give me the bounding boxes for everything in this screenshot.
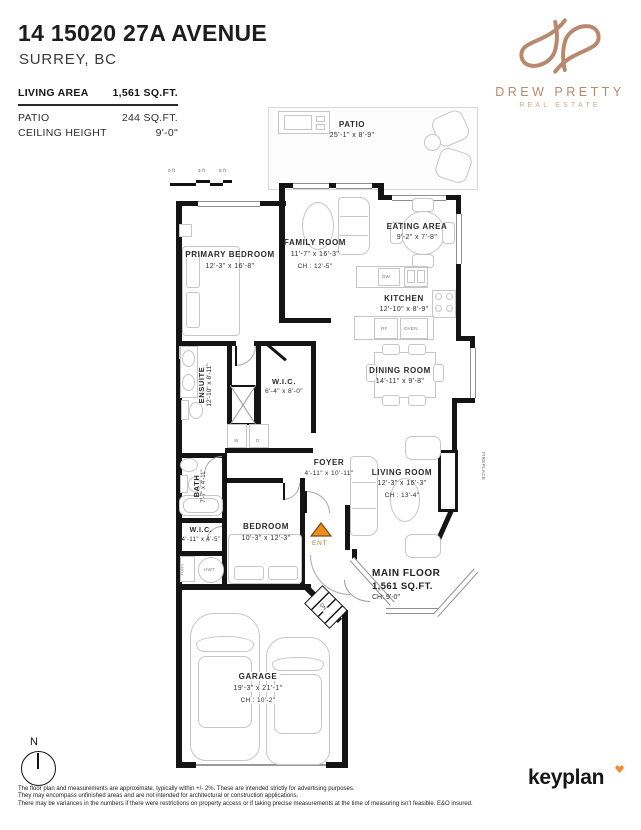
wall <box>176 584 311 590</box>
eating-table <box>401 211 445 255</box>
scale-bar-segment <box>223 180 232 183</box>
wic-primary-dims: 6'-4" x 8'-0" <box>265 388 303 395</box>
car-cabin <box>198 656 252 728</box>
sofa-cushion-line <box>340 216 368 217</box>
kitchen-dims: 12'-10" x 8'-9" <box>379 306 428 313</box>
floor-plan: 0 ft 3 ft 5 ft <box>0 0 641 830</box>
furnace-label: FURN <box>179 564 184 576</box>
garage-label: GARAGE <box>237 672 280 681</box>
chair <box>433 364 444 382</box>
wall <box>176 518 226 523</box>
chair <box>408 344 426 355</box>
north-arrow-icon <box>21 751 56 786</box>
entry-arrow-icon <box>310 522 332 537</box>
burner <box>435 305 442 312</box>
ensuite-label: ENSUITE <box>197 340 206 430</box>
scale-bar-segment <box>210 183 223 186</box>
wall <box>279 183 285 323</box>
chair <box>382 395 400 406</box>
main-floor-area: 1,561 SQ.FT. <box>372 581 440 592</box>
door-arc <box>236 346 256 366</box>
primary-bedroom-label: PRIMARY BEDROOM <box>185 250 274 259</box>
sofa-cushion-line <box>352 508 376 509</box>
chair <box>382 344 400 355</box>
wall <box>225 478 283 483</box>
main-floor-block: MAIN FLOOR 1,561 SQ.FT. CH: 9'-0" <box>372 568 440 601</box>
bay-window <box>434 568 479 617</box>
hwt-label: HWT <box>204 567 215 572</box>
patio-room-label: PATIO <box>339 120 365 129</box>
entry-label: ENT <box>312 540 327 547</box>
living-room-label: LIVING ROOM <box>372 468 432 477</box>
toilet-tank <box>181 400 189 420</box>
fireplace-label: FIREPLACE <box>478 452 486 502</box>
family-room-dims: 11'-7" x 16'-3" <box>291 251 340 258</box>
patio-room-dims: 25'-1" x 8'-9" <box>330 132 375 139</box>
dishwasher-label: DW <box>382 274 390 279</box>
ensuite-dims: 12'-10" x 8'-11" <box>206 340 213 430</box>
sink-basin <box>407 270 415 283</box>
oven-label: OVEN <box>404 326 418 331</box>
burner <box>446 305 453 312</box>
wall <box>254 341 316 346</box>
nightstand <box>179 224 192 237</box>
wic-primary-label: W.I.C. <box>272 377 296 386</box>
fireplace <box>438 450 458 512</box>
shower-x <box>230 385 256 425</box>
washer-label: W <box>234 438 239 443</box>
door-arc <box>283 483 300 500</box>
scale-five: 5 ft <box>219 168 226 173</box>
bay-window <box>386 608 440 614</box>
bbq-knob <box>316 116 325 122</box>
bath-label-block: BATH 7'-7" x 4'-11" <box>192 454 216 518</box>
disclaimer-line: There may be variances in the numbers if… <box>18 801 473 808</box>
window <box>293 183 329 189</box>
sink <box>182 350 195 367</box>
main-floor-label: MAIN FLOOR <box>372 568 440 579</box>
dryer-label: D <box>256 438 260 443</box>
dryer <box>249 424 269 448</box>
armchair <box>405 534 441 558</box>
door-leaf <box>283 483 285 500</box>
chair <box>412 198 434 212</box>
family-room-label: FAMILY ROOM <box>284 238 346 247</box>
chair <box>408 395 426 406</box>
door-leaf <box>235 346 237 366</box>
garage-entry-door-arc <box>310 555 350 595</box>
north-needle <box>37 753 39 769</box>
wic-hall-label: W.I.C. <box>190 527 213 534</box>
entry-door-arc <box>306 491 330 513</box>
scale-zero: 0 ft <box>168 168 175 173</box>
primary-bedroom-dims: 12'-3" x 16'-8" <box>205 263 254 270</box>
pillow <box>268 566 298 580</box>
bbq-grill-top <box>284 115 312 130</box>
ensuite-label-block: ENSUITE 12'-10" x 8'-11" <box>197 340 223 430</box>
sofa-cushion-line <box>352 482 376 483</box>
burner <box>446 293 453 300</box>
wic-hall-dims: 4'-11" x 4'-5" <box>182 537 221 543</box>
garage-ch: CH : 10'-2" <box>239 697 278 704</box>
sink <box>182 374 195 391</box>
floorplan-page: 14 15020 27A AVENUE SURREY, BC LIVING AR… <box>0 0 641 830</box>
dining-table <box>374 352 436 398</box>
bbq-knob <box>316 124 325 130</box>
window <box>456 214 462 264</box>
foyer-dims: 4'-11" x 10'-11" <box>304 470 353 477</box>
living-room-dims: 12'-3" x 16'-3" <box>377 480 426 487</box>
patio-table <box>424 134 441 151</box>
keyplan-fox-icon <box>614 764 625 774</box>
disclaimer: The floor plan and measurements are appr… <box>18 786 473 808</box>
foyer-label: FOYER <box>314 458 345 467</box>
car-windshield <box>272 657 324 671</box>
window <box>336 183 372 189</box>
eating-area-dims: 9'-2" x 7'-8" <box>397 234 437 241</box>
scale-three: 3 ft <box>198 168 205 173</box>
scale-bar-segment <box>170 183 196 186</box>
wall <box>452 398 457 455</box>
dining-room-dims: 14'-11" x 9'-8" <box>376 378 425 385</box>
family-room-ch: CH : 12'-5" <box>298 263 333 270</box>
disclaimer-line: They may encompass unfinished areas and … <box>18 793 473 800</box>
sink-basin <box>417 270 425 283</box>
main-floor-ch: CH: 9'-0" <box>372 594 440 601</box>
kitchen-label: KITCHEN <box>384 294 424 303</box>
bedroom-dims: 10'-3" x 12'-3" <box>241 535 290 542</box>
keyplan-logo: keyplan <box>528 766 604 790</box>
window <box>198 201 260 207</box>
car-windshield <box>196 636 254 652</box>
bath-label: BATH <box>192 454 201 518</box>
car-cabin <box>274 674 322 734</box>
wall <box>256 345 261 427</box>
garage-dims: 19'-3" x 21'-1" <box>231 685 284 692</box>
window <box>470 348 476 398</box>
wall <box>311 341 316 433</box>
bath-dims: 7'-7" x 4'-11" <box>201 454 207 518</box>
burner <box>435 293 442 300</box>
entry-door-leaf <box>305 491 307 513</box>
pillow <box>234 566 264 580</box>
dining-room-label: DINING ROOM <box>369 366 431 375</box>
disclaimer-line: The floor plan and measurements are appr… <box>18 786 473 793</box>
pillow <box>186 292 200 328</box>
eating-area-label: EATING AREA <box>387 222 448 231</box>
armchair <box>405 436 441 460</box>
washer <box>227 424 247 448</box>
wall <box>342 610 348 766</box>
bedroom-label: BEDROOM <box>243 522 289 531</box>
north-label: N <box>30 736 38 748</box>
scale-bar-segment <box>196 180 210 183</box>
sofa-cushion-line <box>340 235 368 236</box>
wall <box>279 318 331 323</box>
refrigerator-label: RF <box>381 326 388 331</box>
wall <box>225 448 313 453</box>
leader-line <box>344 580 370 602</box>
living-room-ch: CH : 13'-4" <box>385 492 420 499</box>
toilet-tank <box>180 475 188 493</box>
